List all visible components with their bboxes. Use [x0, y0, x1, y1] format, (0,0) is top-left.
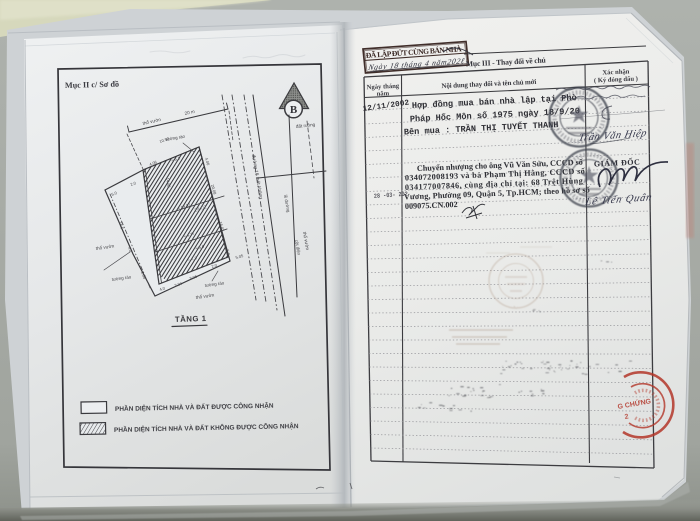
svg-text:năm: năm	[377, 90, 390, 98]
svg-text:Mục II c/ Sơ đồ: Mục II c/ Sơ đồ	[65, 80, 119, 90]
svg-text:TẦNG 1: TẦNG 1	[175, 313, 207, 324]
svg-text:B: B	[290, 104, 298, 116]
